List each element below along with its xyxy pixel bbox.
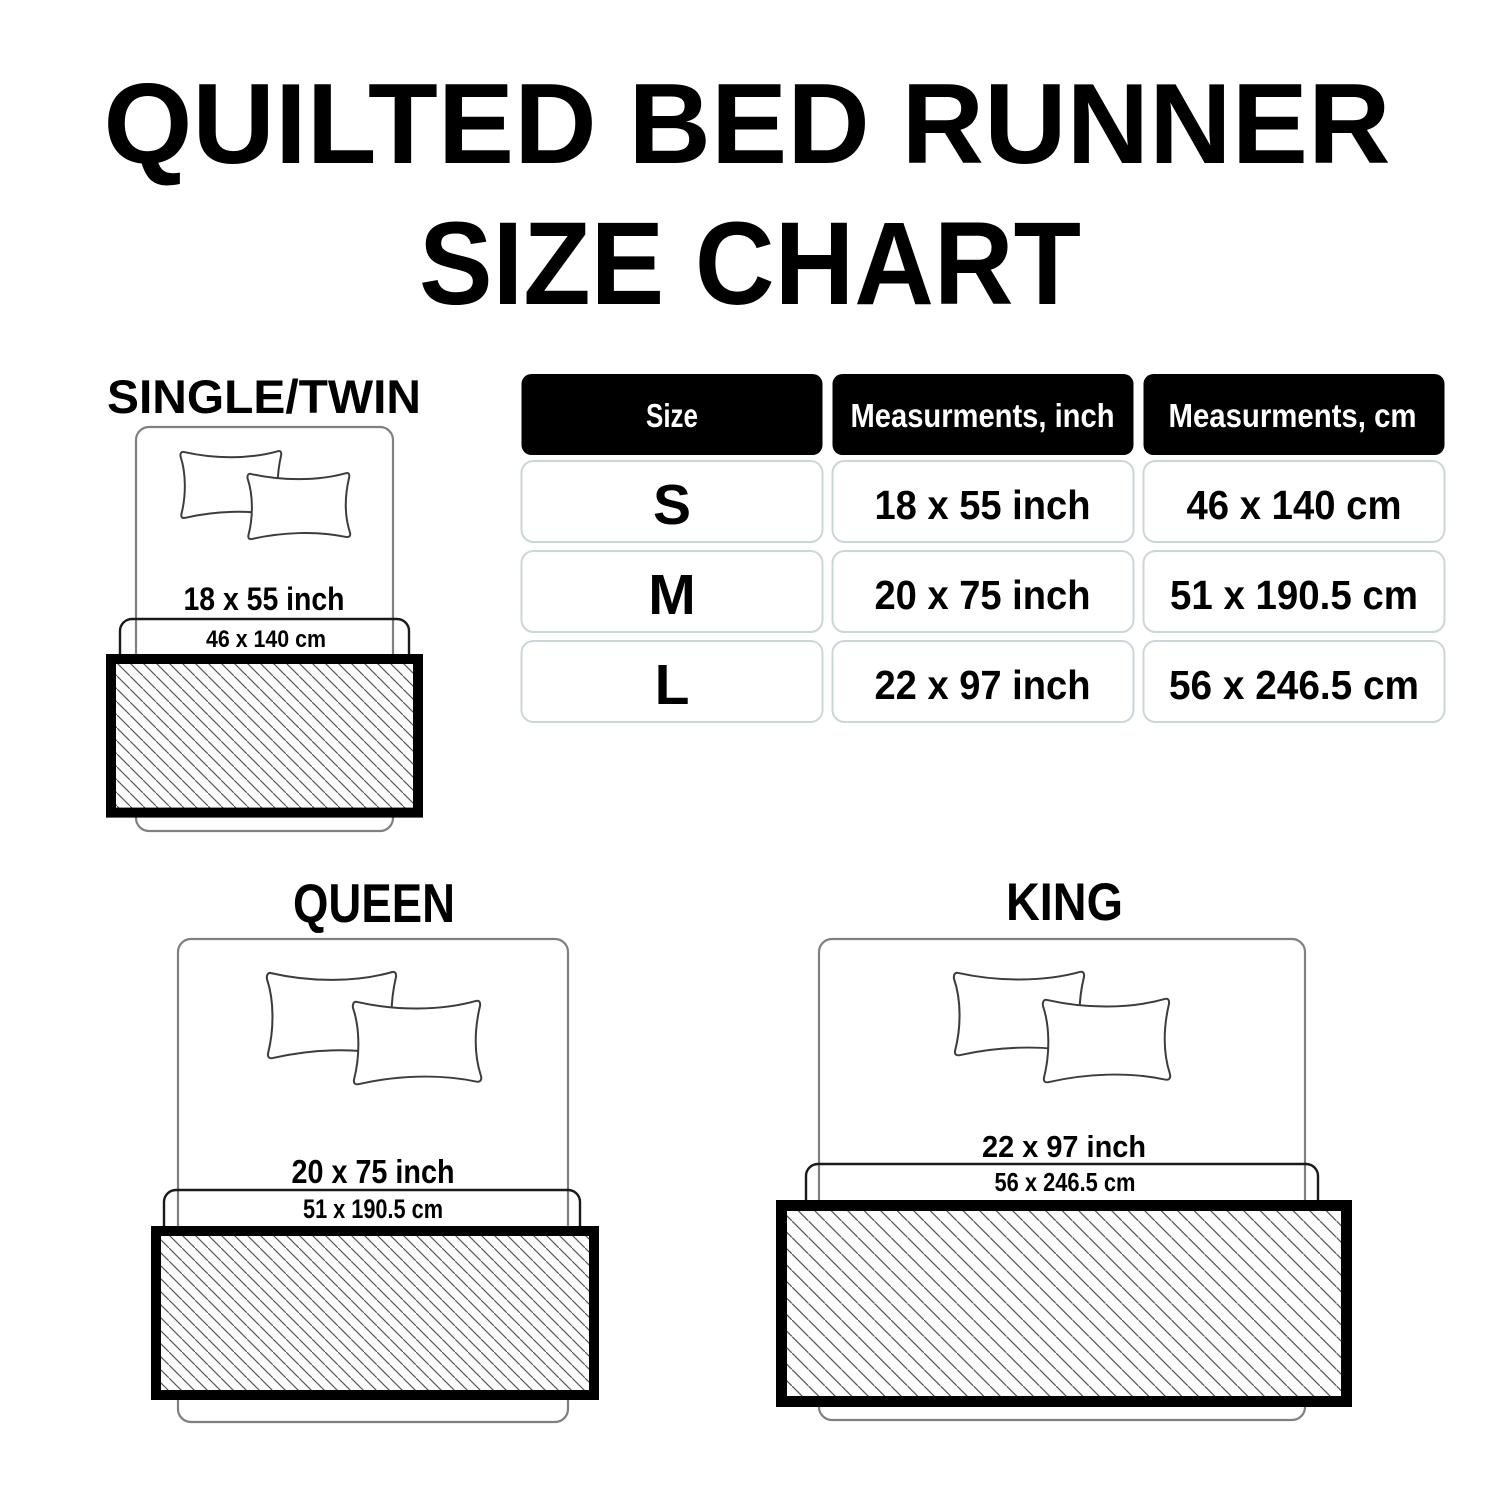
svg-text:M: M — [648, 563, 695, 627]
svg-text:SIZE CHART: SIZE CHART — [419, 198, 1081, 330]
svg-text:Measurments, inch: Measurments, inch — [851, 397, 1115, 434]
svg-text:56 x 246.5 cm: 56 x 246.5 cm — [1169, 662, 1419, 708]
svg-text:20 x 75 inch: 20 x 75 inch — [875, 572, 1091, 618]
svg-text:56 x 246.5 cm: 56 x 246.5 cm — [995, 1167, 1136, 1197]
svg-text:QUEEN: QUEEN — [293, 872, 455, 934]
svg-text:S: S — [653, 473, 691, 537]
svg-text:18 x 55 inch: 18 x 55 inch — [184, 581, 345, 617]
svg-text:20 x 75 inch: 20 x 75 inch — [292, 1153, 455, 1190]
svg-text:L: L — [655, 653, 690, 717]
svg-text:51 x 190.5 cm: 51 x 190.5 cm — [1170, 572, 1418, 618]
svg-text:51 x 190.5 cm: 51 x 190.5 cm — [303, 1194, 443, 1224]
svg-text:Measurments, cm: Measurments, cm — [1169, 397, 1417, 434]
svg-text:KING: KING — [1006, 873, 1123, 932]
svg-text:22 x 97 inch: 22 x 97 inch — [982, 1129, 1146, 1164]
svg-text:SINGLE/TWIN: SINGLE/TWIN — [107, 370, 421, 423]
svg-text:18 x 55 inch: 18 x 55 inch — [875, 482, 1091, 528]
svg-text:Size: Size — [646, 397, 698, 434]
svg-text:46 x 140 cm: 46 x 140 cm — [206, 626, 326, 653]
svg-text:22 x 97 inch: 22 x 97 inch — [875, 662, 1091, 708]
svg-text:QUILTED BED RUNNER: QUILTED BED RUNNER — [104, 61, 1391, 188]
svg-text:46 x 140 cm: 46 x 140 cm — [1187, 482, 1402, 528]
